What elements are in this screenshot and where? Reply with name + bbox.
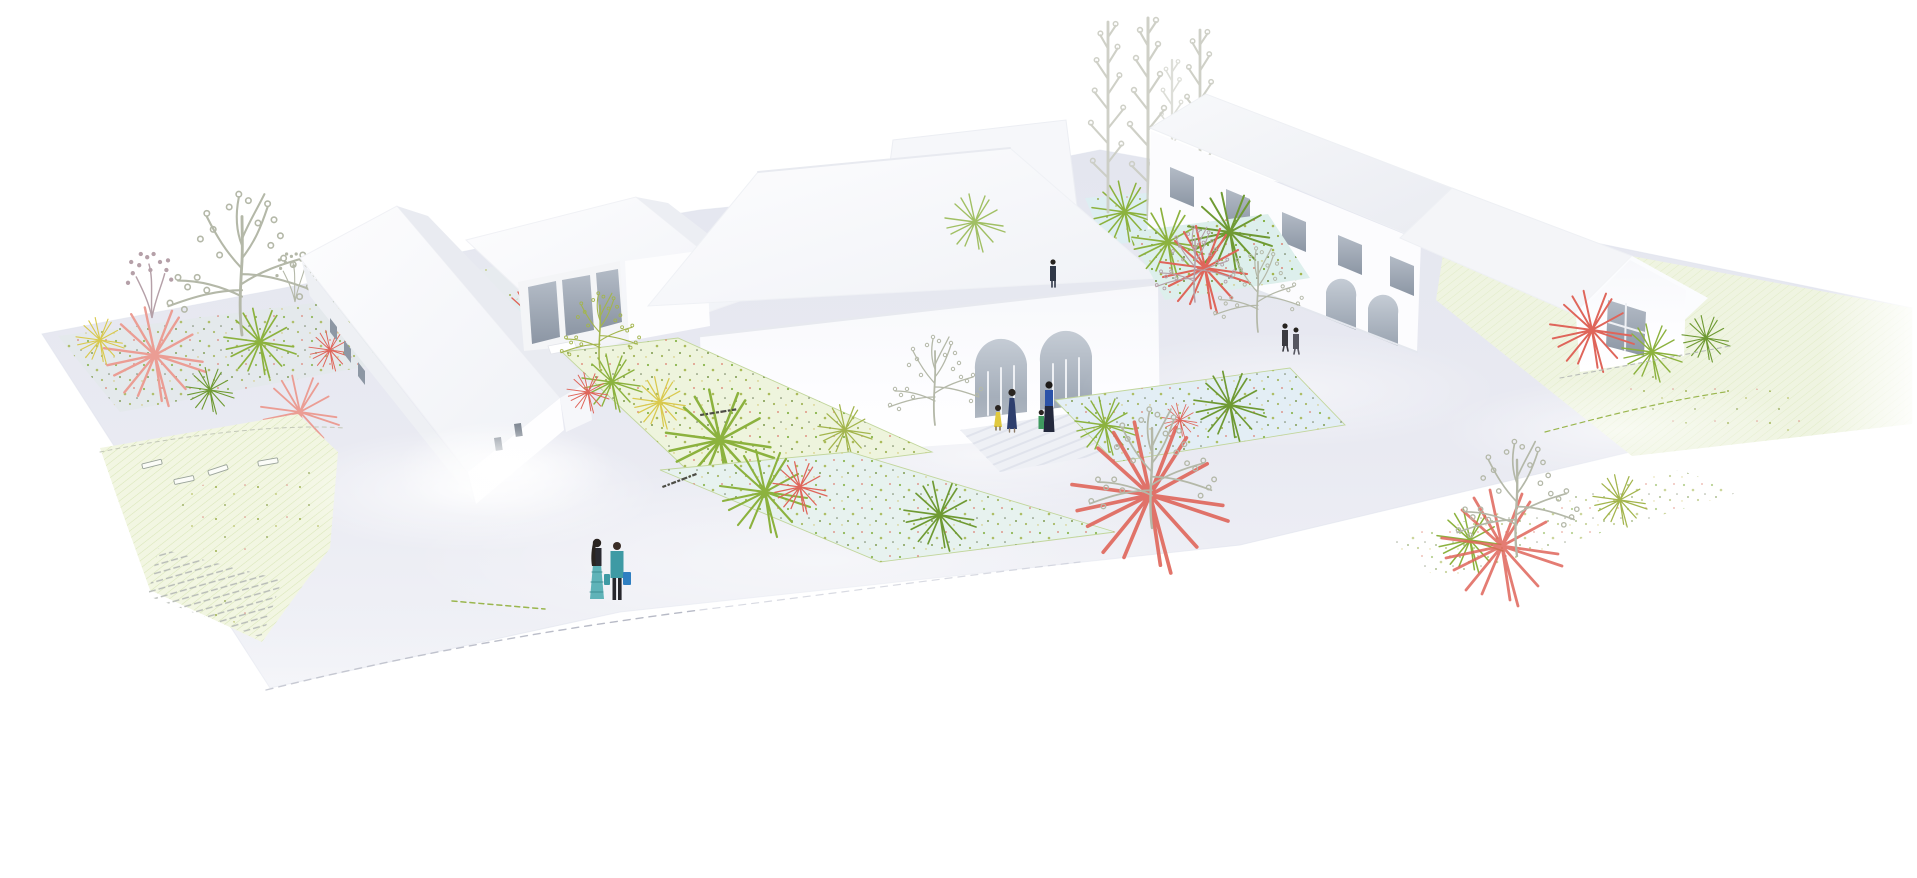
body xyxy=(1050,266,1056,281)
head xyxy=(1282,323,1287,328)
dotted-shrub xyxy=(127,253,173,318)
glow xyxy=(1440,378,1800,482)
right-fade xyxy=(1820,0,1917,878)
bag xyxy=(604,574,610,585)
body xyxy=(1282,330,1288,346)
head xyxy=(1008,389,1015,396)
architectural-rendering: Aerial architectural rendering of a whit… xyxy=(0,0,1917,878)
body xyxy=(1293,334,1299,349)
bottom-fade xyxy=(0,620,1917,878)
body xyxy=(1039,416,1045,429)
glass-pane xyxy=(528,281,560,344)
long-skirt xyxy=(1044,404,1055,432)
head xyxy=(1050,259,1055,264)
shirt xyxy=(611,551,624,578)
head xyxy=(1039,410,1044,415)
top xyxy=(1045,390,1053,406)
head xyxy=(1294,328,1299,333)
site-plan-svg: Aerial architectural rendering of a whit… xyxy=(0,0,1917,878)
head xyxy=(613,542,621,550)
head xyxy=(1045,381,1052,388)
head xyxy=(995,405,1001,411)
leg xyxy=(618,576,622,600)
blue-bag xyxy=(623,572,631,585)
person-toddler-green xyxy=(1039,410,1045,429)
leg xyxy=(613,576,617,600)
